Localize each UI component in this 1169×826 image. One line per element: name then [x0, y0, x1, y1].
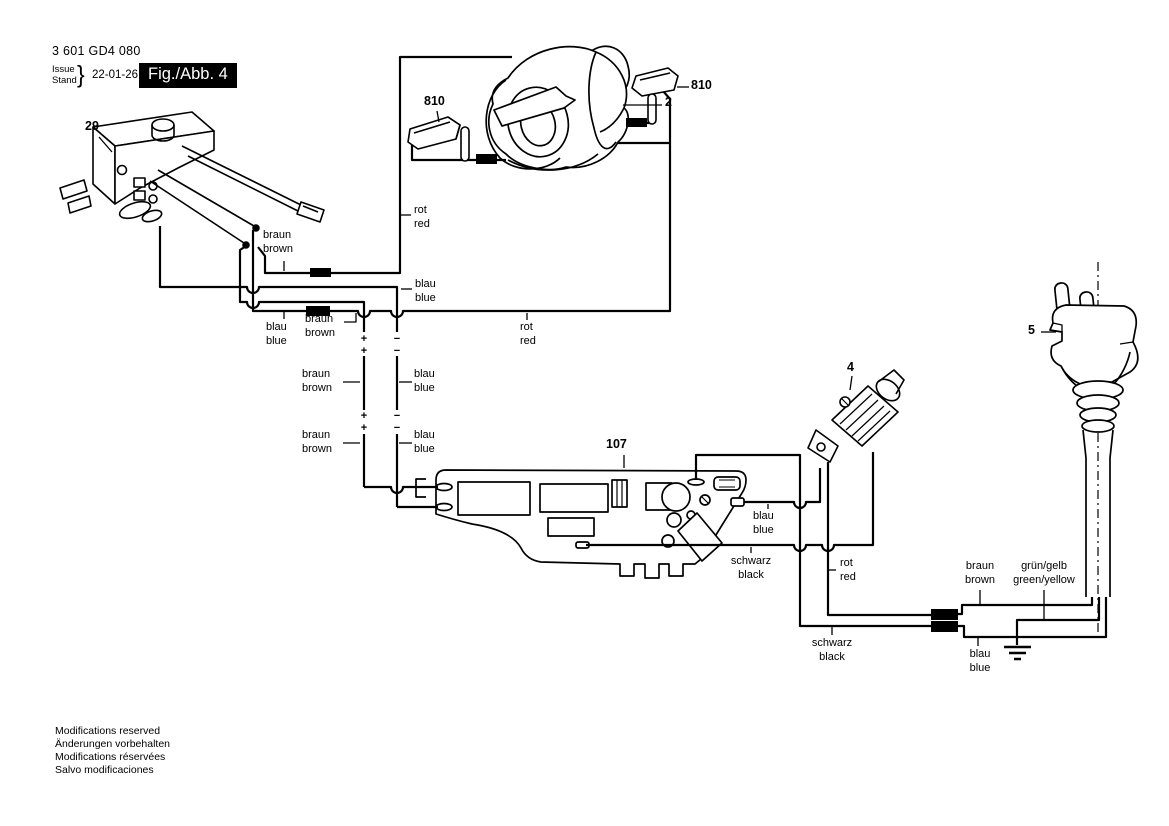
polarity-plus-mark: + [361, 410, 367, 422]
wire-rot-suppressor-to-junction [828, 462, 933, 615]
wire-label-braun-brown-arm1: braun brown [302, 368, 332, 395]
part-label-field-coil: 2 [665, 95, 672, 109]
wire-label-braun-brown-switch: braun brown [263, 229, 293, 256]
polarity-minus-mark: − [394, 345, 400, 357]
part-label-brush-right: 810 [691, 78, 712, 92]
junction-crimps [931, 609, 958, 632]
crimp-schwarz-blau-mains [931, 621, 958, 632]
wire-rot-braun-upper [258, 57, 512, 273]
part-label-plug: 5 [1028, 323, 1035, 337]
wire-blau-pcb-to-suppressor [744, 468, 820, 508]
part-label-switch: 29 [85, 119, 99, 133]
polarity-plus-mark: + [361, 333, 367, 345]
polarity-minus-mark: − [394, 333, 400, 345]
figure-label-box: Fig./Abb. 4 [139, 63, 237, 88]
field-coil-drawing [486, 46, 629, 170]
part-label-brush-left: 810 [424, 94, 445, 108]
issue-stand-brace: } [77, 60, 85, 88]
wire-label-rot-red-long: rot red [520, 321, 536, 348]
wire-label-blau-blue-pcb: blau blue [753, 510, 774, 537]
polarity-minus-mark: − [394, 422, 400, 434]
wire-label-schwarz-black-bottom: schwarz black [795, 637, 869, 664]
wire-label-blau-blue-left: blau blue [266, 321, 287, 348]
wire-label-gruen-gelb-mains: grün/gelb green/yellow [1000, 560, 1088, 587]
polarity-minus-mark: − [394, 410, 400, 422]
wire-armature-to-pcb [364, 487, 438, 507]
wire-label-blau-blue-arm2: blau blue [414, 429, 435, 456]
crimp-brush-right [626, 118, 647, 127]
wire-label-schwarz-black-pcb: schwarz black [715, 555, 787, 582]
wire-label-braun-brown-arm2: braun brown [302, 429, 332, 456]
issue-stand-label: Issue Stand [52, 64, 77, 86]
part-number: 3 601 GD4 080 [52, 44, 141, 58]
wire-label-rot-red-top: rot red [414, 204, 430, 231]
wiring-diagram-canvas [0, 0, 1169, 826]
crimp-rot-braun [310, 268, 331, 277]
crimp-brush-left [476, 154, 497, 164]
pcb-drawing [416, 470, 746, 578]
wire-braun-mains [957, 597, 1092, 614]
wire-label-blau-blue-corner: blau blue [415, 278, 436, 305]
wire-label-blau-blue-arm1: blau blue [414, 368, 435, 395]
switch-drawing [60, 112, 324, 248]
part-label-pcb: 107 [606, 437, 627, 451]
wire-label-rot-red-right: rot red [840, 557, 856, 584]
issue-date: 22-01-26 [92, 69, 138, 81]
polarity-plus-mark: + [361, 345, 367, 357]
wire-label-blau-blue-mains: blau blue [950, 648, 1010, 675]
brush-left-drawing [408, 117, 469, 161]
wiring-diagram-page: 3 601 GD4 080 Issue Stand } 22-01-26 Fig… [0, 0, 1169, 826]
wire-blau-armature [160, 226, 397, 507]
polarity-plus-mark: + [361, 422, 367, 434]
wire-label-braun-brown-crimp: braun brown [305, 313, 335, 340]
modifications-notice: Modifications reserved Änderungen vorbeh… [55, 725, 170, 777]
crimp-rot-braun-mains [931, 609, 958, 620]
suppressor-drawing [808, 370, 904, 462]
part-label-suppressor: 4 [847, 360, 854, 374]
